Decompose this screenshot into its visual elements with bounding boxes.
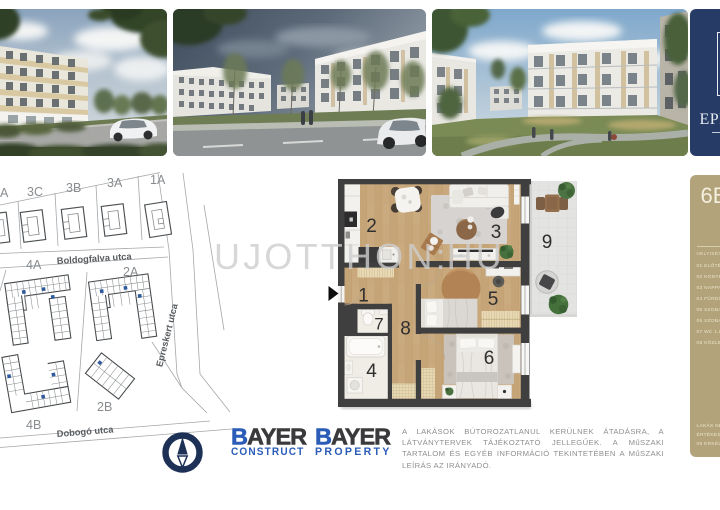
svg-text:8: 8 (400, 319, 411, 340)
svg-text:3B: 3B (66, 181, 81, 195)
svg-text:4B: 4B (26, 418, 41, 432)
svg-text:1A: 1A (150, 173, 166, 187)
svg-text:Dobogó utca: Dobogó utca (56, 424, 114, 439)
svg-text:6: 6 (484, 348, 495, 369)
svg-text:5: 5 (488, 289, 499, 310)
svg-text:A: A (0, 186, 9, 200)
svg-text:4: 4 (366, 361, 377, 382)
svg-text:2: 2 (366, 216, 377, 237)
svg-text:4A: 4A (26, 258, 42, 272)
svg-text:1: 1 (358, 286, 369, 307)
svg-text:9: 9 (542, 232, 553, 253)
svg-text:Boldogfalva utca: Boldogfalva utca (56, 251, 132, 266)
svg-text:7: 7 (374, 315, 383, 334)
svg-text:2B: 2B (97, 400, 112, 414)
svg-text:3C: 3C (27, 185, 43, 199)
svg-text:3A: 3A (107, 176, 123, 190)
